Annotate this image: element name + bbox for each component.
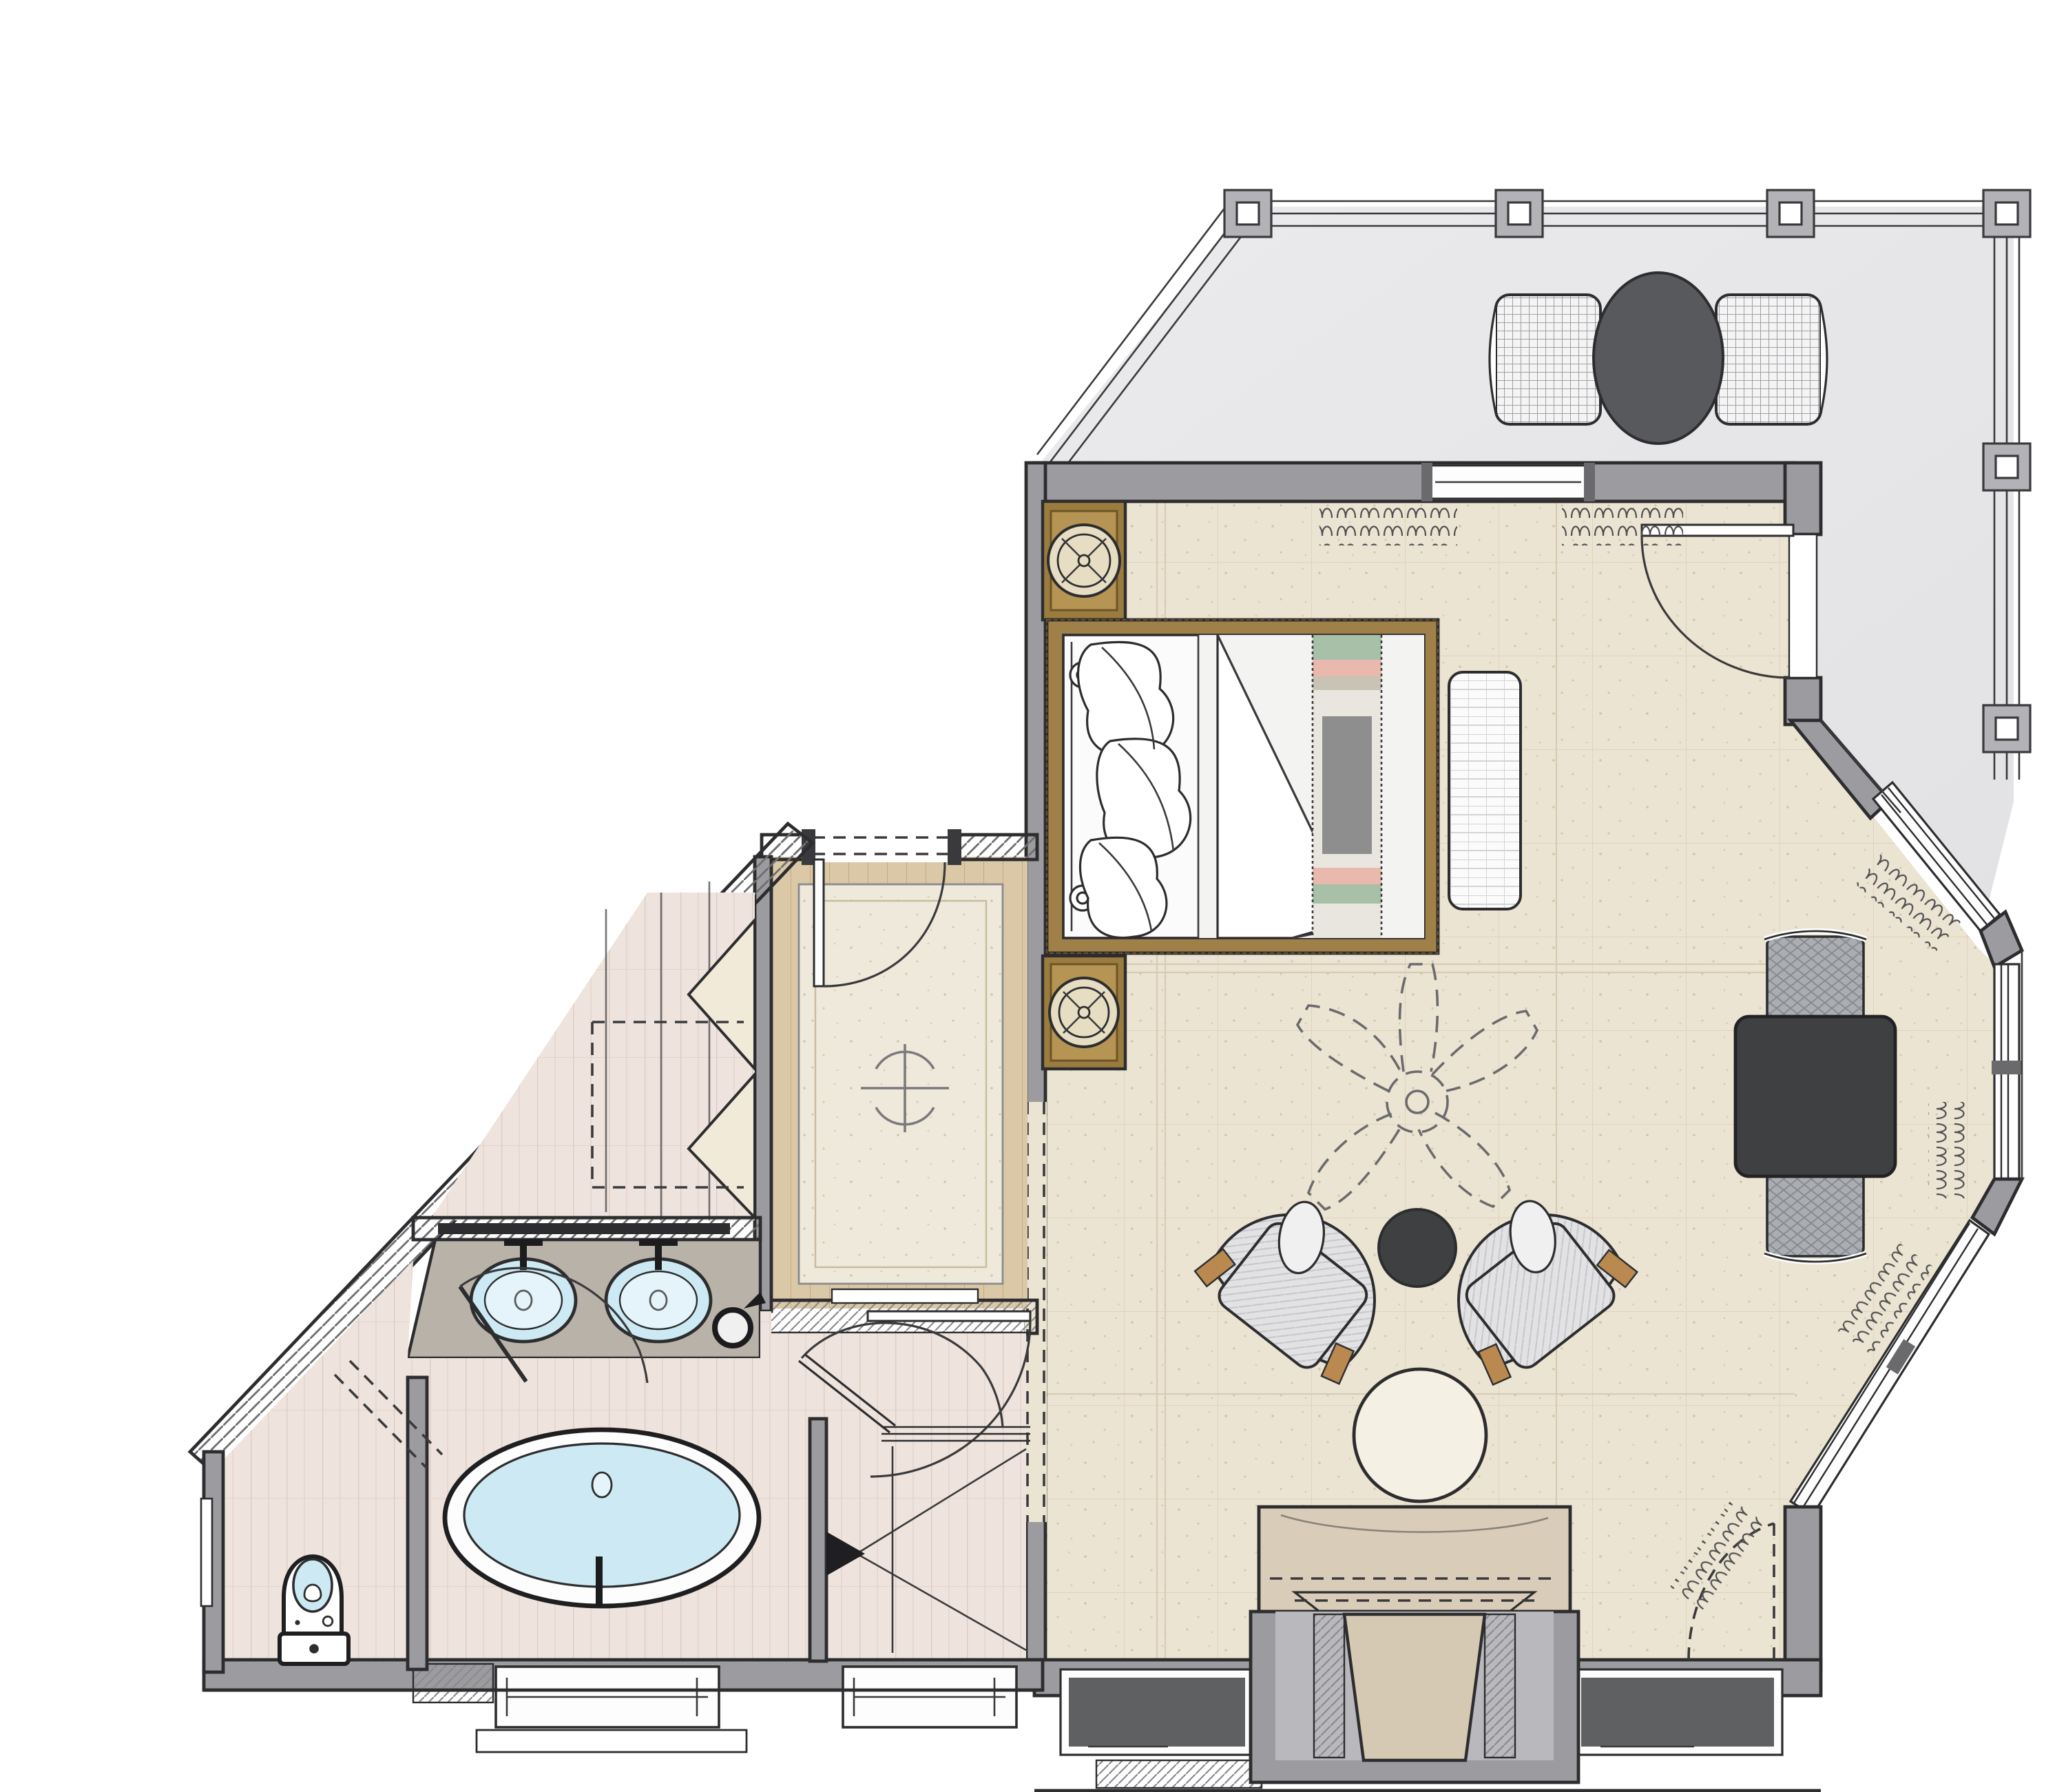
deck-bench-left — [1490, 295, 1600, 424]
dining-table — [1735, 1017, 1895, 1176]
bedroom-bottom-window-left — [1061, 1669, 1253, 1755]
console-stool — [1344, 1614, 1485, 1760]
deck-post — [1224, 190, 1271, 237]
bed-runner — [1313, 635, 1381, 938]
ottoman — [1354, 1369, 1486, 1501]
deck-post — [1983, 705, 2030, 752]
bed-duvet — [1198, 635, 1424, 938]
bedroom-top-wall — [1034, 463, 1795, 501]
drapery-icon — [1562, 504, 1683, 545]
exterior-sill-hatch — [1096, 1760, 1262, 1788]
toilet — [280, 1556, 348, 1664]
deck-door-jamb-upper — [1785, 463, 1821, 534]
bedroom-right-lower-wall — [1785, 1507, 1821, 1669]
top-wall-window — [1421, 463, 1595, 501]
vestibule — [755, 829, 1037, 1333]
tub-drain — [592, 1472, 612, 1497]
deck-post — [1496, 190, 1543, 237]
shower-left-wall — [810, 1419, 826, 1661]
console-area — [1251, 1507, 1578, 1782]
floor-plan-page — [0, 0, 2066, 1792]
nightstand-upper — [1043, 501, 1125, 620]
entry-door-leaf — [814, 859, 824, 986]
table-lamp-icon — [1050, 978, 1118, 1047]
drapery-icon — [1319, 504, 1457, 545]
deck-post — [1983, 190, 2030, 237]
deck-post — [1767, 190, 1814, 237]
deck-post — [1983, 444, 2030, 490]
exterior-sill — [477, 1730, 747, 1752]
bathtub — [445, 1430, 759, 1606]
dining-stool-top — [1764, 931, 1866, 1025]
console-niche — [1251, 1612, 1578, 1782]
dining-stool-bottom — [1764, 1168, 1866, 1262]
wc-niche — [201, 1499, 212, 1606]
nightstand-lower — [1043, 956, 1125, 1069]
floor-plan-drawing — [0, 0, 2066, 1792]
bedroom-bottom-window-right — [1573, 1669, 1782, 1755]
vanity-mirror — [438, 1223, 730, 1234]
bath-window-right — [843, 1667, 1016, 1727]
closet — [430, 882, 755, 1220]
deck-door-jamb-lower — [1785, 678, 1821, 725]
console — [1259, 1507, 1570, 1612]
bathroom-door-leaf — [868, 1311, 1030, 1321]
side-table — [1379, 1209, 1456, 1286]
deck-table — [1594, 273, 1723, 444]
bed — [1047, 620, 1438, 953]
bay-window-mid — [1992, 964, 2022, 1179]
drapery-icon — [1928, 1102, 1970, 1198]
threshold-strip — [832, 1289, 978, 1303]
bath-window-left — [496, 1667, 719, 1727]
deck-bench-right — [1716, 295, 1827, 424]
bed-bench — [1449, 672, 1521, 909]
table-lamp-icon — [1048, 525, 1120, 596]
